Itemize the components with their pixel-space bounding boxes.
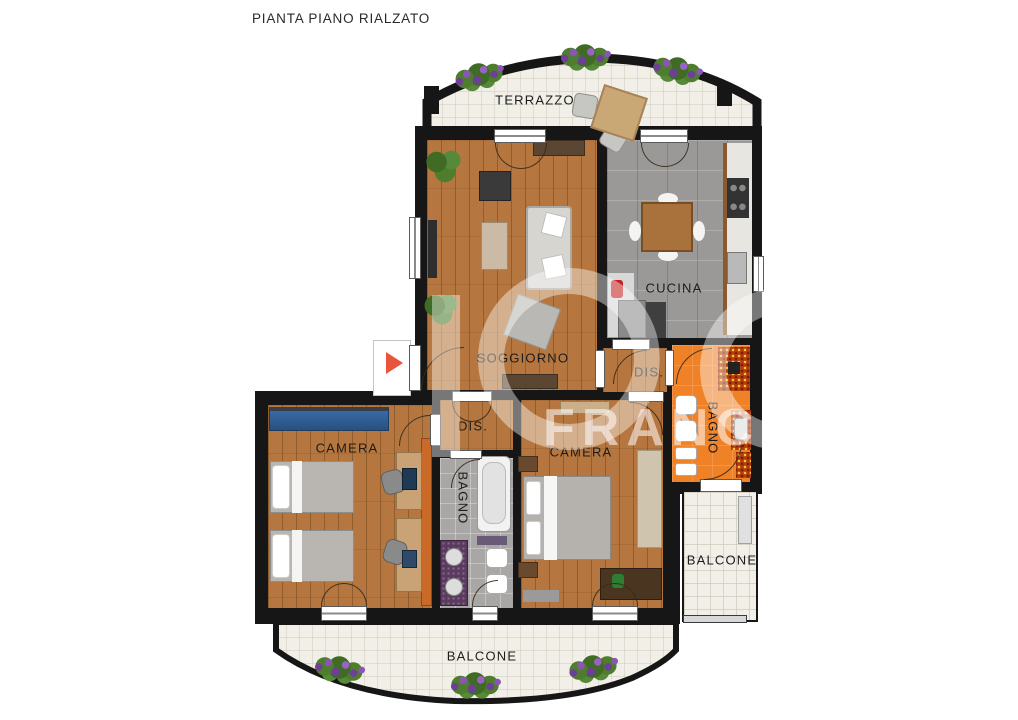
bath-shelf <box>675 463 697 476</box>
bidet <box>675 420 697 442</box>
bed-pillow <box>526 521 541 555</box>
kitchen-unit-dark <box>646 302 666 338</box>
terrazzo-corner-left <box>424 86 439 114</box>
kitchen-unit <box>618 300 646 338</box>
room-label-terrazzo: TERRAZZO <box>495 93 575 108</box>
bed-pillow <box>526 481 541 515</box>
window-cucina-right <box>753 256 764 292</box>
tv-cabinet <box>479 171 511 201</box>
tv-wall-panel <box>428 220 437 278</box>
coffee-table <box>481 222 508 270</box>
door-soggiorno-dis-right <box>595 350 605 388</box>
door-dis-middle-camera-left <box>430 414 441 446</box>
room-label-camera-left: CAMERA <box>316 441 379 456</box>
french-door-camera-master-balcone <box>592 606 638 621</box>
door-bagno-right-balcone <box>700 479 742 492</box>
room-label-camera-master: CAMERA <box>550 445 613 460</box>
wardrobe-blue <box>269 407 389 431</box>
bath-shelf <box>675 447 697 460</box>
plan-title: PIANTA PIANO RIALZATO <box>252 11 430 26</box>
french-door-cucina-terrazzo <box>640 129 688 143</box>
room-label-bagno-right: BAGNO <box>706 402 721 455</box>
bed-pillow <box>272 465 290 509</box>
balcone-right-rail <box>683 615 747 623</box>
french-door-soggiorno-terrazzo <box>494 129 546 143</box>
shower-drain <box>728 362 740 374</box>
flower-box <box>446 670 504 700</box>
entrance-arrow-icon <box>386 352 403 374</box>
toilet <box>486 548 508 568</box>
plant-soggiorno-left <box>424 292 460 326</box>
round-sink <box>445 578 463 596</box>
room-label-dis-middle: DIS. <box>458 419 488 434</box>
nightstand <box>518 562 538 578</box>
room-label-dis-right: DIS. <box>634 365 664 380</box>
nightstand <box>518 456 538 472</box>
dresser <box>560 401 610 414</box>
room-label-balcone-bottom: BALCONE <box>447 649 518 664</box>
bath-sink <box>734 418 748 440</box>
bed-sheet-fold <box>292 530 302 582</box>
dining-table <box>641 202 693 252</box>
room-label-soggiorno: SOGGIORNO <box>477 351 569 366</box>
wardrobe-master <box>637 450 662 548</box>
shelf-orange <box>421 438 432 606</box>
door-dis-right-camera-master <box>628 391 664 402</box>
french-door-camera-left-balcone <box>321 606 367 621</box>
door-dis-right-bagno <box>665 350 674 386</box>
round-sink <box>445 548 463 566</box>
bathtub-inner <box>482 462 506 524</box>
kitchen-sink <box>727 252 747 284</box>
sideboard-bottom <box>502 374 558 389</box>
kitchen-chair <box>692 220 706 242</box>
fridge-red-item <box>611 280 623 298</box>
floor-plan: PIANTA PIANO RIALZATO <box>0 0 1018 720</box>
sofa-cushion <box>541 254 567 280</box>
window-soggiorno-left <box>409 217 421 279</box>
room-label-balcone-right: BALCONE <box>687 553 758 568</box>
plant-soggiorno-top <box>424 146 466 186</box>
toilet <box>675 395 697 415</box>
kitchen-chair <box>628 220 642 242</box>
laptop <box>402 550 417 568</box>
monitor <box>402 468 417 490</box>
bath-mat <box>477 536 507 545</box>
door-cucina-dis-right <box>612 339 650 350</box>
radiator <box>738 496 752 544</box>
room-label-cucina: CUCINA <box>645 281 702 296</box>
bed-sheet-fold <box>544 476 557 560</box>
kitchen-counter <box>723 143 752 335</box>
stove <box>727 178 749 218</box>
room-label-bagno-middle: BAGNO <box>456 472 471 525</box>
entrance-door-gap <box>409 345 421 391</box>
door-soggiorno-dis-middle <box>452 391 492 402</box>
bed-pillow <box>272 534 290 578</box>
terrazzo-corner-right <box>717 83 732 106</box>
flower-box <box>556 42 614 72</box>
door-bagno-middle-balcone <box>472 606 498 621</box>
bed-sheet-fold <box>292 461 302 513</box>
rug-small <box>523 590 559 602</box>
door-dis-middle-bagno <box>450 450 482 459</box>
